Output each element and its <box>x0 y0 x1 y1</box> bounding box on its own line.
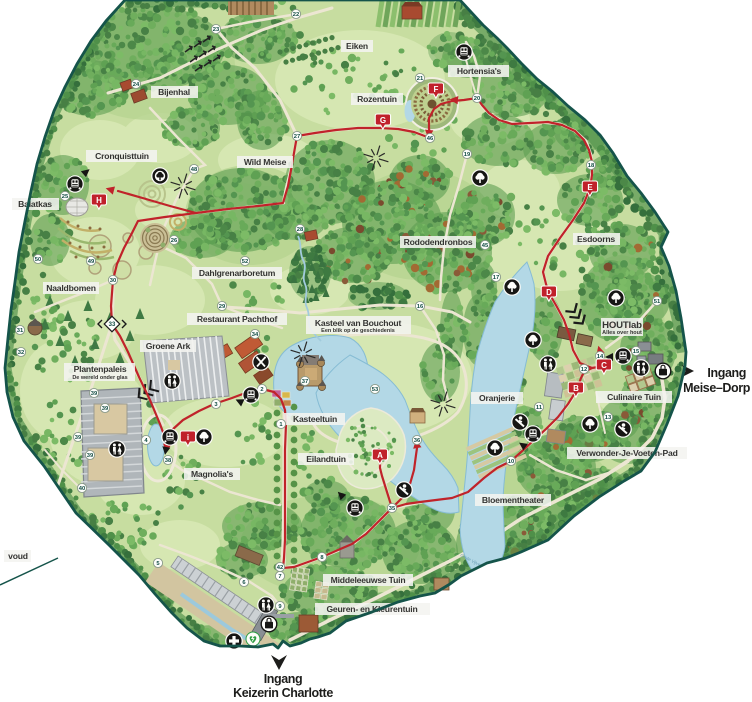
svg-text:13: 13 <box>605 415 612 421</box>
svg-text:Verwonder-Je-Voeten-Pad: Verwonder-Je-Voeten-Pad <box>576 448 677 458</box>
svg-text:Middeleeuwse Tuin: Middeleeuwse Tuin <box>331 575 406 585</box>
svg-text:32: 32 <box>18 350 24 356</box>
svg-text:48: 48 <box>191 167 198 173</box>
svg-text:Bloementheater: Bloementheater <box>482 495 545 505</box>
svg-text:36: 36 <box>414 438 421 444</box>
svg-text:Esdoorns: Esdoorns <box>577 234 615 244</box>
svg-text:Eilandtuin: Eilandtuin <box>306 454 346 464</box>
svg-text:Hortensia's: Hortensia's <box>457 66 502 76</box>
svg-text:37: 37 <box>302 379 308 385</box>
svg-text:26: 26 <box>171 238 178 244</box>
svg-text:Kasteel van Bouchout: Kasteel van Bouchout <box>315 318 402 328</box>
svg-text:23: 23 <box>213 27 220 33</box>
svg-text:Plantenpaleis: Plantenpaleis <box>74 364 127 374</box>
svg-text:Rododendronbos: Rododendronbos <box>404 237 473 247</box>
svg-text:Alles over hout: Alles over hout <box>602 330 642 336</box>
svg-text:30: 30 <box>110 278 116 284</box>
svg-text:49: 49 <box>88 259 95 265</box>
svg-text:Balatkas: Balatkas <box>18 199 52 209</box>
svg-text:17: 17 <box>493 275 499 281</box>
svg-text:39: 39 <box>102 406 109 412</box>
svg-text:29: 29 <box>219 304 226 310</box>
svg-text:50: 50 <box>35 257 41 263</box>
svg-text:39: 39 <box>91 391 98 397</box>
svg-text:Naaldbomen: Naaldbomen <box>46 283 96 293</box>
svg-text:39: 39 <box>87 453 94 459</box>
svg-text:51: 51 <box>654 299 661 305</box>
svg-text:25: 25 <box>62 194 69 200</box>
svg-text:Eiken: Eiken <box>346 41 368 51</box>
svg-text:52: 52 <box>242 259 248 265</box>
svg-text:Culinaire Tuin: Culinaire Tuin <box>607 392 661 402</box>
svg-text:Bijenhal: Bijenhal <box>158 87 190 97</box>
svg-text:39: 39 <box>75 435 82 441</box>
svg-text:15: 15 <box>633 349 640 355</box>
svg-text:De wereld onder glas: De wereld onder glas <box>72 375 127 381</box>
svg-text:19: 19 <box>464 152 471 158</box>
svg-text:voud: voud <box>8 551 28 561</box>
svg-text:53: 53 <box>372 387 379 393</box>
svg-text:Oranjerie: Oranjerie <box>479 393 515 403</box>
svg-text:7: 7 <box>278 574 281 580</box>
svg-text:21: 21 <box>417 76 424 82</box>
svg-text:11: 11 <box>536 405 543 411</box>
svg-text:Een blik op de geschiedenis: Een blik op de geschiedenis <box>321 328 395 334</box>
svg-text:Groene Ark: Groene Ark <box>146 341 191 351</box>
svg-text:34: 34 <box>252 332 259 338</box>
svg-text:Cronquisttuin: Cronquisttuin <box>95 151 149 161</box>
svg-text:38: 38 <box>165 458 172 464</box>
svg-text:22: 22 <box>293 12 299 18</box>
svg-text:35: 35 <box>389 506 396 512</box>
svg-text:42: 42 <box>277 565 283 571</box>
svg-text:18: 18 <box>588 163 595 169</box>
svg-text:24: 24 <box>133 82 140 88</box>
svg-text:27: 27 <box>294 134 300 140</box>
svg-text:Kasteeltuin: Kasteeltuin <box>293 414 337 424</box>
svg-text:40: 40 <box>79 486 85 492</box>
svg-text:12: 12 <box>581 367 587 373</box>
svg-text:10: 10 <box>508 459 514 465</box>
svg-text:Restaurant Pachthof: Restaurant Pachthof <box>197 314 278 324</box>
svg-text:33: 33 <box>109 322 116 328</box>
svg-text:28: 28 <box>297 227 304 233</box>
svg-text:16: 16 <box>417 304 424 310</box>
svg-text:20: 20 <box>474 96 480 102</box>
svg-text:45: 45 <box>482 243 489 249</box>
svg-text:Wild Meise: Wild Meise <box>244 157 287 167</box>
svg-text:Rozentuin: Rozentuin <box>357 94 397 104</box>
svg-text:2: 2 <box>260 387 263 393</box>
svg-text:Dahlgrenarboretum: Dahlgrenarboretum <box>199 268 276 278</box>
svg-text:31: 31 <box>17 328 24 334</box>
svg-text:46: 46 <box>427 136 434 142</box>
svg-text:Magnolia's: Magnolia's <box>191 469 233 479</box>
